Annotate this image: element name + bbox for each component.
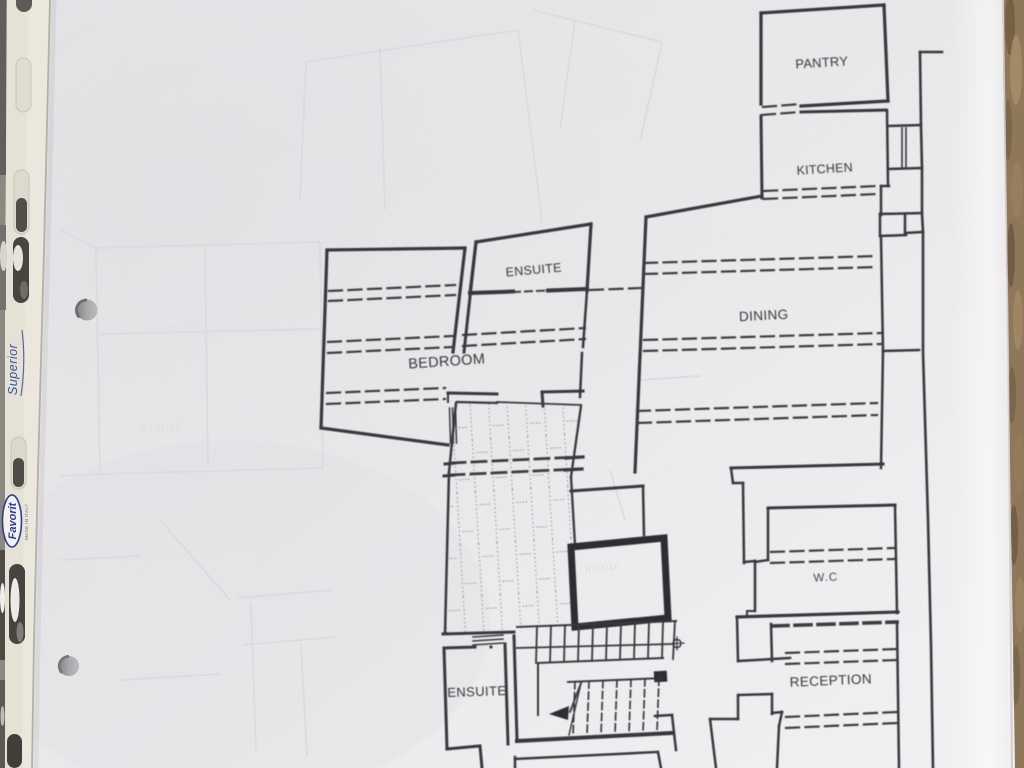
svg-text:Superior: Superior xyxy=(6,343,20,395)
svg-text:ENSUITE: ENSUITE xyxy=(447,683,507,700)
svg-text:Favorit: Favorit xyxy=(7,501,19,539)
svg-text:ROOM: ROOM xyxy=(585,562,619,574)
svg-text:W.C: W.C xyxy=(813,571,838,584)
svg-text:DINING: DINING xyxy=(739,307,789,325)
svg-text:STORE: STORE xyxy=(140,422,185,435)
svg-text:MADE IN ITALY: MADE IN ITALY xyxy=(24,504,29,540)
